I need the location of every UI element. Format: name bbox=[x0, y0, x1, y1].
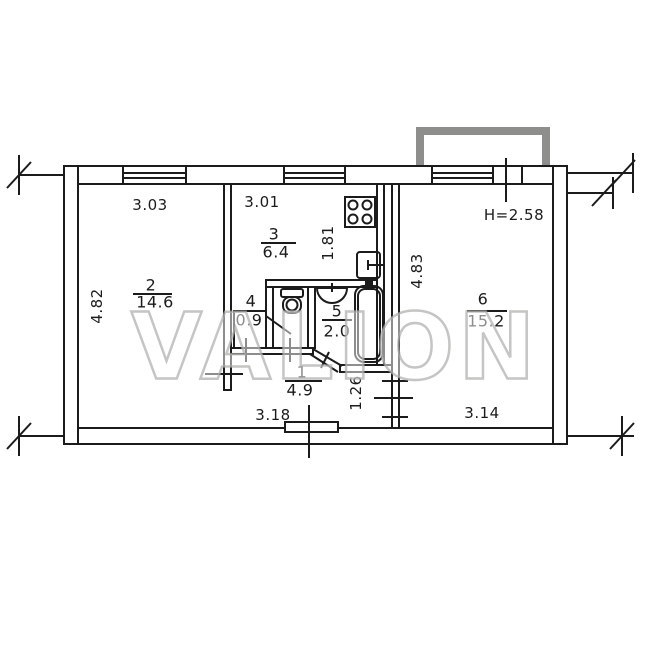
balcony-outline bbox=[420, 131, 546, 166]
dim-kitchen-inner: 1.81 bbox=[319, 225, 337, 260]
kitchen-sink-icon bbox=[357, 252, 383, 278]
room6-number: 6 bbox=[478, 290, 489, 309]
room5-area: 2.0 bbox=[324, 322, 351, 341]
dim-room2-depth: 4.82 bbox=[88, 288, 106, 323]
dim-kitchen-width: 3.01 bbox=[244, 193, 279, 211]
entry-door-recess bbox=[285, 422, 338, 432]
room4-number: 4 bbox=[246, 292, 257, 311]
room5-number: 5 bbox=[332, 302, 343, 321]
floor-plan: VALION 3.03 3.01 1.81 H=2.58 4.82 4.83 1… bbox=[0, 0, 670, 658]
room3-area: 6.4 bbox=[263, 243, 290, 262]
room1-number: 1 bbox=[297, 363, 308, 382]
room3-number: 3 bbox=[269, 225, 280, 244]
room4-area: 0.9 bbox=[236, 311, 263, 330]
toilet-icon bbox=[281, 289, 303, 313]
wall-bath-chamfer-outer bbox=[313, 349, 342, 366]
wall-room6-left bbox=[392, 184, 399, 428]
wall-wc-bath bbox=[308, 287, 315, 348]
dim-room2-width: 3.03 bbox=[132, 196, 167, 214]
stove-icon bbox=[345, 197, 375, 227]
room6-area: 15.2 bbox=[467, 312, 505, 331]
room1-area: 4.9 bbox=[287, 381, 314, 400]
dim-nook-depth: 1.26 bbox=[347, 375, 365, 410]
room2-area: 14.6 bbox=[136, 293, 174, 312]
wall-left bbox=[64, 166, 78, 444]
dim-room6-depth: 4.83 bbox=[408, 253, 426, 288]
dim-hall-width: 3.18 bbox=[255, 406, 290, 424]
wall-top bbox=[64, 166, 567, 184]
dim-room6-width: 3.14 bbox=[464, 404, 499, 422]
wall-bath-bottom bbox=[340, 365, 398, 372]
wall-right bbox=[553, 166, 567, 444]
ceiling-height-label: H=2.58 bbox=[484, 206, 544, 224]
wall-room2-hall bbox=[224, 184, 231, 390]
